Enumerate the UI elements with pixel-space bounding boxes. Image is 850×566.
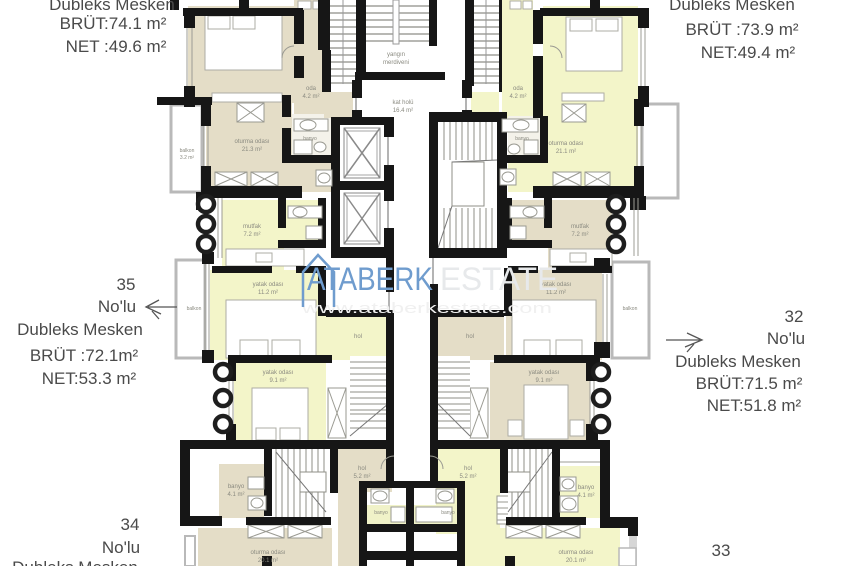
svg-text:4.2 m²: 4.2 m² bbox=[302, 94, 319, 100]
svg-text:ATABERK: ATABERK bbox=[307, 261, 433, 297]
svg-text:balkon: balkon bbox=[623, 306, 638, 312]
svg-text:oda: oda bbox=[306, 86, 317, 92]
svg-text:hol: hol bbox=[464, 466, 472, 472]
svg-text:Dubleks Mesken: Dubleks Mesken bbox=[675, 352, 801, 371]
svg-text:mutfak: mutfak bbox=[571, 224, 590, 230]
svg-text:banyo: banyo bbox=[441, 510, 455, 516]
svg-text:mutfak: mutfak bbox=[243, 224, 262, 230]
svg-text:banyo: banyo bbox=[303, 136, 317, 142]
svg-text:NET:51.8 m²: NET:51.8 m² bbox=[707, 396, 802, 415]
svg-text:hol: hol bbox=[358, 466, 366, 472]
svg-text:oturma odası: oturma odası bbox=[558, 550, 593, 556]
svg-text:banyo: banyo bbox=[228, 484, 245, 490]
svg-text:banyo: banyo bbox=[578, 485, 595, 491]
svg-text:www.ataberkestate.com: www.ataberkestate.com bbox=[300, 300, 552, 317]
svg-text:hol: hol bbox=[466, 334, 474, 340]
svg-text:oturma odası: oturma odası bbox=[234, 139, 269, 145]
svg-text:4.1 m²: 4.1 m² bbox=[227, 492, 244, 498]
svg-text:20.1 m²: 20.1 m² bbox=[258, 558, 278, 564]
svg-text:merdiveni: merdiveni bbox=[383, 60, 409, 66]
svg-text:35: 35 bbox=[117, 275, 136, 294]
svg-text:No'lu: No'lu bbox=[767, 329, 805, 348]
svg-text:NET:53.3 m²: NET:53.3 m² bbox=[42, 369, 137, 388]
svg-text:4.2 m²: 4.2 m² bbox=[509, 94, 526, 100]
svg-text:BRÜT:74.1 m²: BRÜT:74.1 m² bbox=[60, 14, 167, 33]
svg-text:Dubleks Mesken: Dubleks Mesken bbox=[49, 0, 175, 14]
svg-text:9.1 m²: 9.1 m² bbox=[535, 378, 552, 384]
svg-text:32: 32 bbox=[785, 307, 804, 326]
svg-text:No'lu: No'lu bbox=[102, 538, 140, 557]
svg-text:banyo: banyo bbox=[515, 136, 529, 142]
svg-text:9.1 m²: 9.1 m² bbox=[269, 378, 286, 384]
svg-text:7.2 m²: 7.2 m² bbox=[243, 232, 260, 238]
svg-text:yatak odası: yatak odası bbox=[263, 370, 294, 376]
svg-text:21.3 m²: 21.3 m² bbox=[242, 147, 262, 153]
svg-text:3.2 m²: 3.2 m² bbox=[180, 155, 195, 161]
svg-text:yatak odası: yatak odası bbox=[529, 370, 560, 376]
svg-text:yangın: yangın bbox=[387, 52, 405, 58]
svg-text:yatak odası: yatak odası bbox=[253, 282, 284, 288]
svg-text:Dubleks Mesken: Dubleks Mesken bbox=[669, 0, 795, 14]
svg-text:oturma odası: oturma odası bbox=[548, 141, 583, 147]
svg-text:Dubleks Mesken: Dubleks Mesken bbox=[17, 320, 143, 339]
svg-text:20.1 m²: 20.1 m² bbox=[566, 558, 586, 564]
svg-text:BRÜT :72.1m²: BRÜT :72.1m² bbox=[30, 346, 139, 365]
svg-text:balkon: balkon bbox=[187, 306, 202, 312]
svg-text:7.2 m²: 7.2 m² bbox=[571, 232, 588, 238]
svg-text:33: 33 bbox=[712, 541, 731, 560]
svg-text:34: 34 bbox=[121, 515, 140, 534]
svg-text:NET :49.6 m²: NET :49.6 m² bbox=[66, 37, 167, 56]
svg-text:ESTATE: ESTATE bbox=[440, 261, 558, 297]
svg-text:16.4 m²: 16.4 m² bbox=[393, 108, 413, 114]
svg-text:5.2 m²: 5.2 m² bbox=[353, 474, 370, 480]
svg-text:No'lu: No'lu bbox=[98, 297, 136, 316]
svg-text:hol: hol bbox=[354, 334, 362, 340]
svg-text:21.1 m²: 21.1 m² bbox=[556, 149, 576, 155]
svg-text:balkon: balkon bbox=[180, 148, 195, 154]
svg-text:Dubleks Mesken: Dubleks Mesken bbox=[12, 558, 138, 566]
svg-text:NET:49.4 m²: NET:49.4 m² bbox=[701, 43, 796, 62]
svg-text:oda: oda bbox=[513, 86, 524, 92]
svg-text:BRÜT:71.5 m²: BRÜT:71.5 m² bbox=[696, 374, 803, 393]
svg-text:4.1 m²: 4.1 m² bbox=[577, 493, 594, 499]
svg-text:kat holü: kat holü bbox=[392, 100, 413, 106]
svg-text:oturma odası: oturma odası bbox=[250, 550, 285, 556]
svg-text:5.2 m²: 5.2 m² bbox=[459, 474, 476, 480]
svg-text:BRÜT :73.9 m²: BRÜT :73.9 m² bbox=[685, 20, 798, 39]
svg-text:11.2 m²: 11.2 m² bbox=[258, 290, 278, 296]
svg-text:banyo: banyo bbox=[374, 510, 388, 516]
